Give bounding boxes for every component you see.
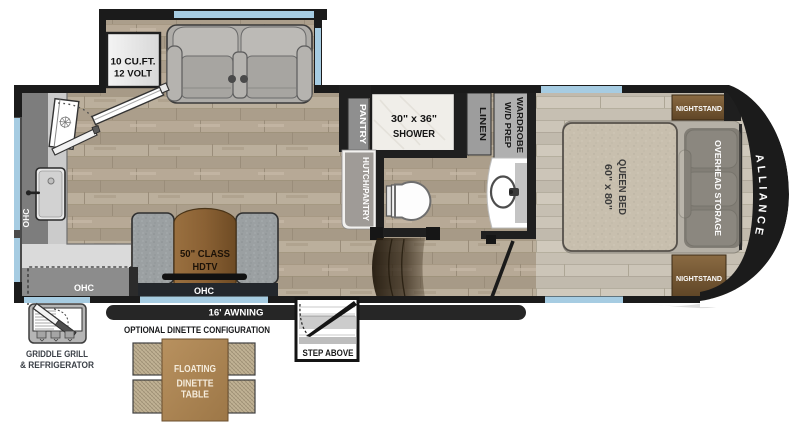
svg-text:PANTRY: PANTRY [358, 104, 367, 145]
svg-text:60" x 80": 60" x 80" [602, 164, 614, 210]
svg-text:OPTIONAL DINETTE CONFIGURATION: OPTIONAL DINETTE CONFIGURATION [124, 325, 270, 336]
svg-text:STEP ABOVE: STEP ABOVE [303, 348, 354, 359]
svg-text:W/D PREP: W/D PREP [503, 102, 513, 148]
svg-text:& REFRIGERATOR: & REFRIGERATOR [20, 360, 94, 370]
svg-text:HDTV: HDTV [193, 261, 218, 273]
svg-text:HUTCH/PANTRY: HUTCH/PANTRY [361, 157, 370, 222]
svg-text:10 CU.FT.: 10 CU.FT. [111, 57, 156, 68]
svg-text:QUEEN BED: QUEEN BED [616, 159, 628, 215]
svg-text:OHC: OHC [74, 283, 95, 293]
svg-text:FLOATING: FLOATING [174, 364, 216, 375]
svg-text:TABLE: TABLE [181, 390, 209, 401]
svg-text:OHC: OHC [194, 286, 215, 296]
svg-text:SHOWER: SHOWER [393, 129, 436, 140]
svg-text:OVERHEAD STORAGE: OVERHEAD STORAGE [713, 140, 723, 236]
svg-text:16' AWNING: 16' AWNING [209, 308, 264, 319]
svg-text:DINETTE: DINETTE [177, 379, 214, 390]
svg-text:LINEN: LINEN [478, 107, 488, 141]
svg-text:NIGHTSTAND: NIGHTSTAND [676, 274, 723, 283]
svg-text:GRIDDLE GRILL: GRIDDLE GRILL [26, 349, 88, 359]
svg-text:12 VOLT: 12 VOLT [114, 69, 152, 80]
svg-text:50" CLASS: 50" CLASS [180, 248, 230, 260]
svg-text:30" x 36": 30" x 36" [391, 114, 437, 125]
svg-text:NIGHTSTAND: NIGHTSTAND [676, 104, 723, 113]
svg-text:OHC: OHC [21, 209, 31, 228]
svg-text:WARDROBE: WARDROBE [515, 97, 525, 153]
